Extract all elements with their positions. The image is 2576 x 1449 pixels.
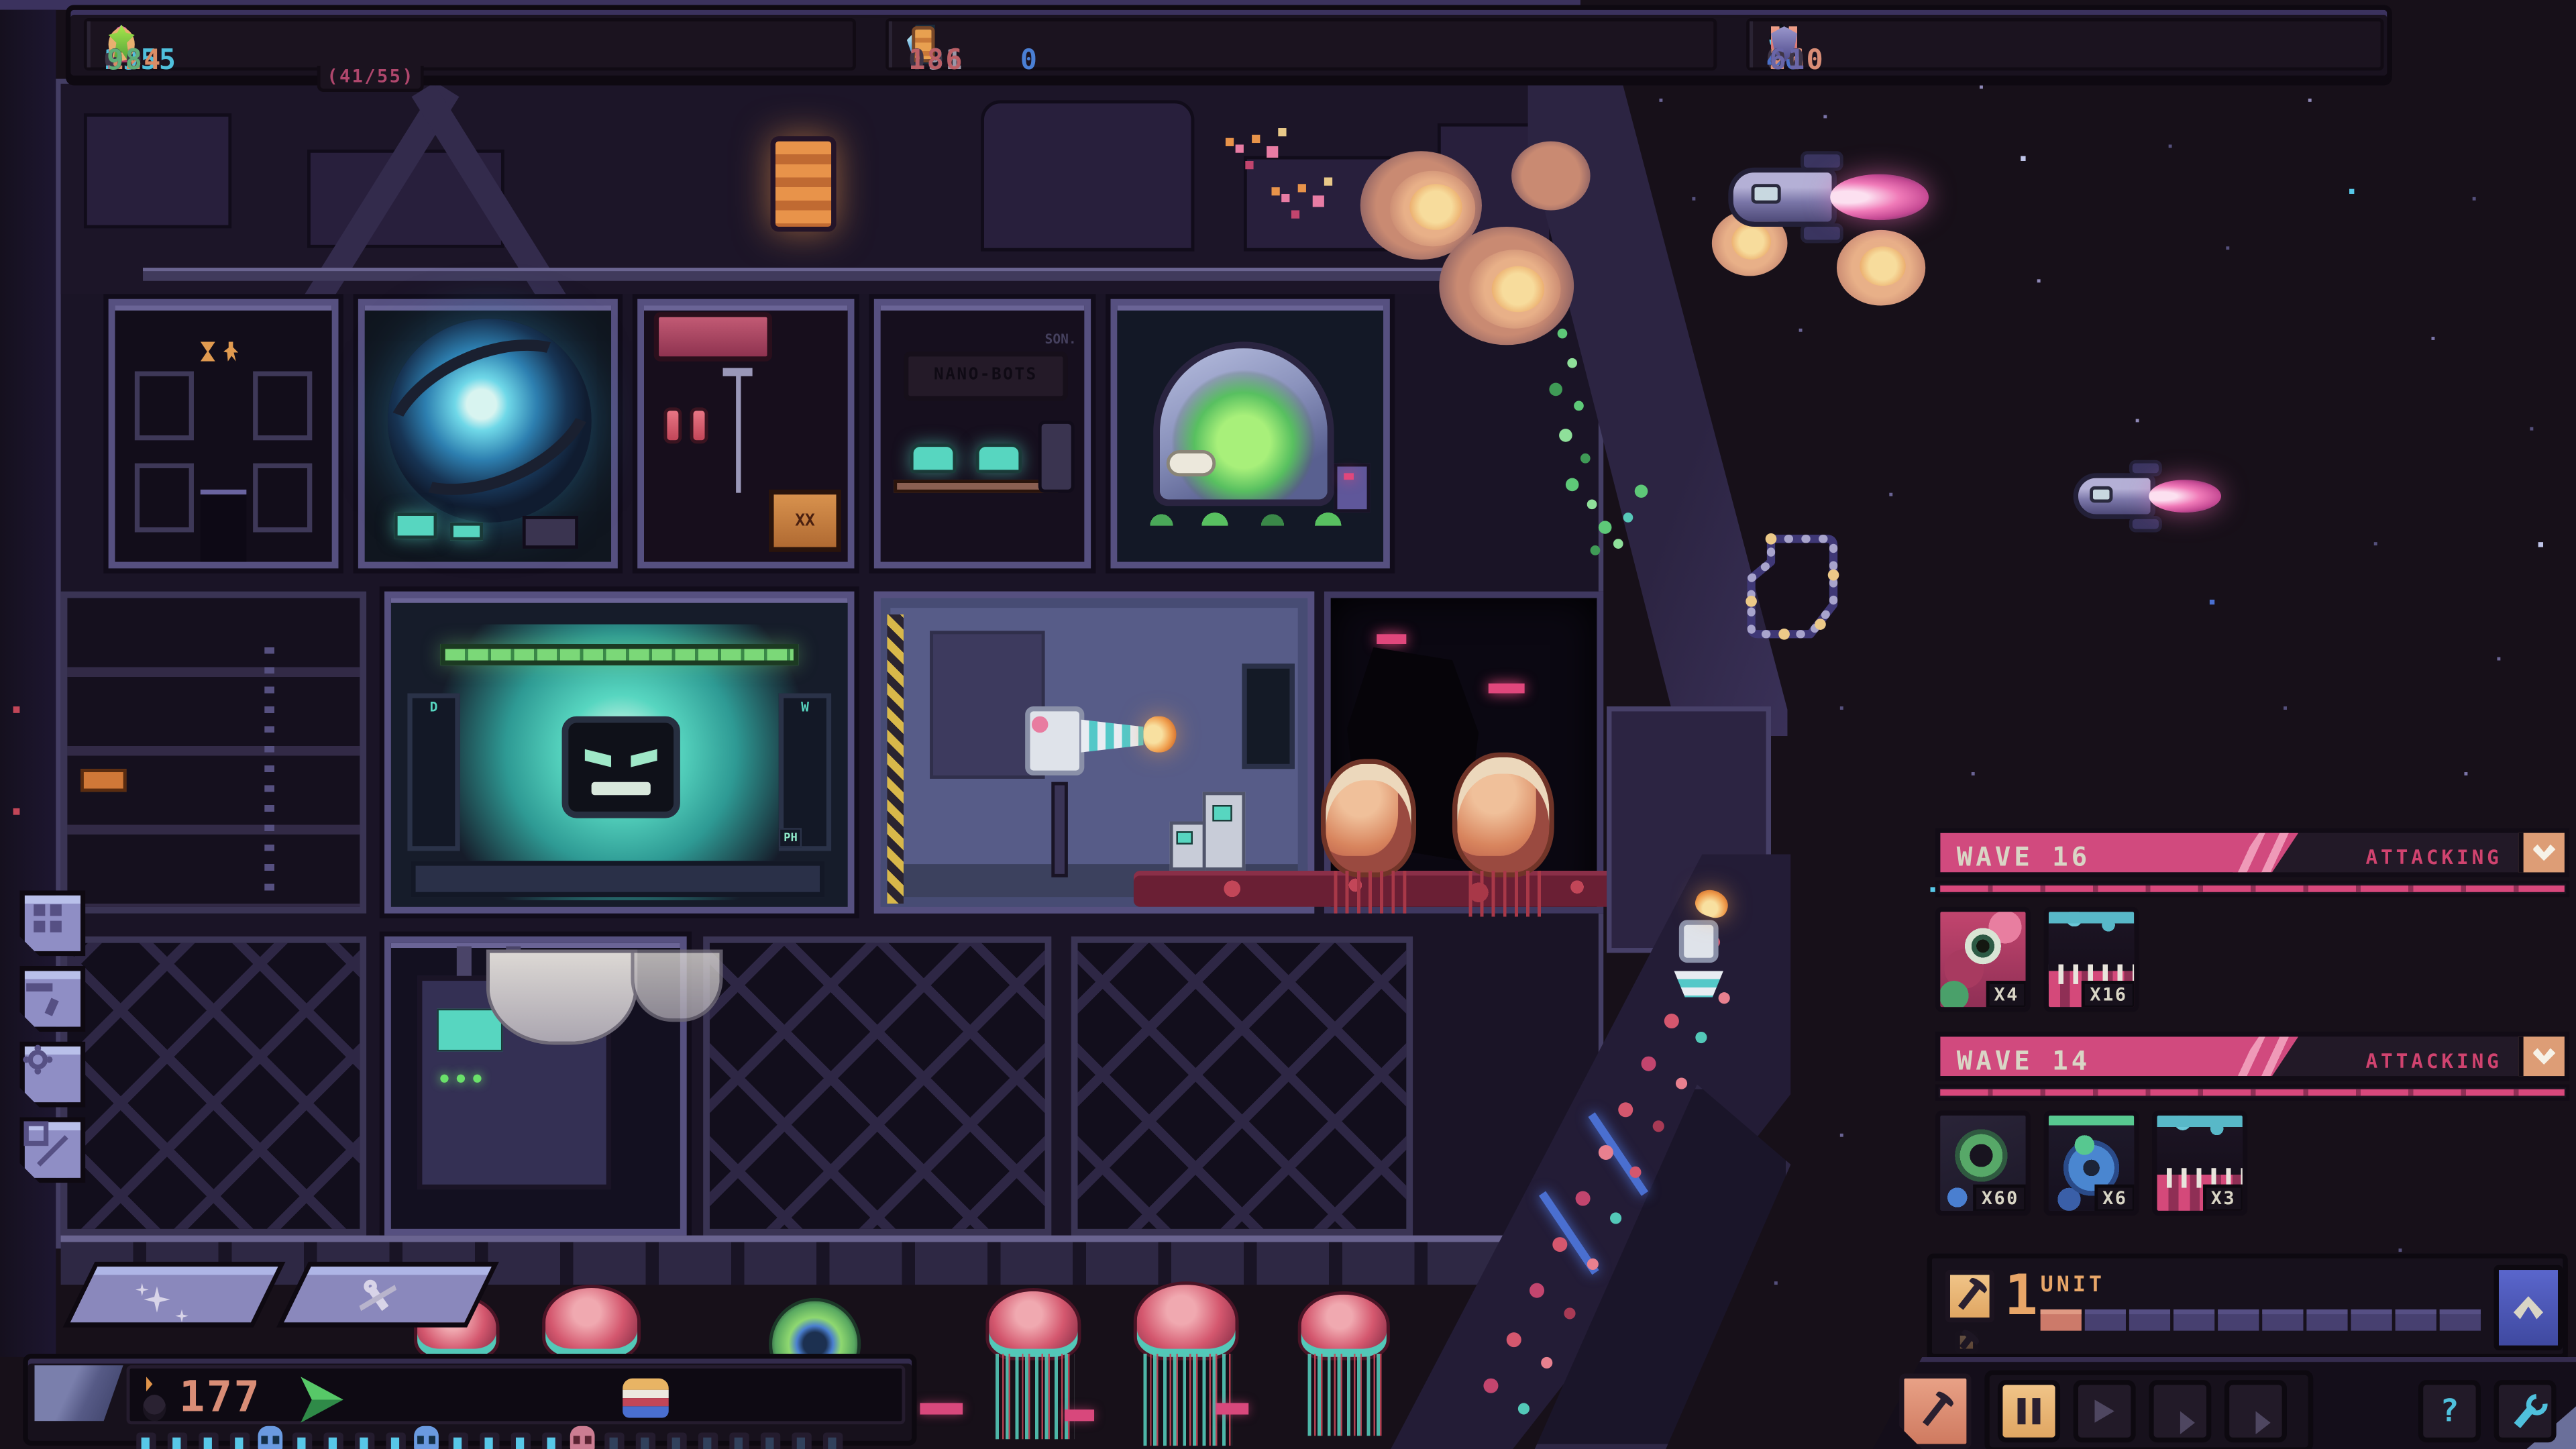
- readout-screen: 177: [127, 1365, 906, 1424]
- hazard-door-frame: [887, 614, 903, 904]
- wave-banner: WAVE 16 ATTACKING: [1935, 828, 2569, 877]
- timeline-slot: [574, 1433, 593, 1449]
- wave-status-badge: ATTACKING: [2365, 1050, 2502, 1073]
- flak-burst: [1236, 145, 1244, 153]
- enemy-count-badge: X6: [2094, 1185, 2136, 1213]
- timeline-slot: [511, 1433, 531, 1449]
- hourglass-icon: [201, 341, 215, 361]
- mech-icon: [26, 983, 52, 991]
- roof-pod: [981, 100, 1194, 251]
- jellyfish-monster[interactable]: [542, 1285, 641, 1360]
- missile-flame: [2149, 480, 2221, 513]
- iv-stand-arm: [723, 368, 753, 376]
- unit-progress-bar: [2041, 1309, 2481, 1331]
- timeline-tick: [484, 1438, 492, 1449]
- chevron-down-icon: [2532, 1048, 2555, 1064]
- plants: [1140, 499, 1354, 525]
- sparkle-icon-small: [136, 1283, 149, 1297]
- workshop-screen: [437, 1009, 502, 1052]
- pink-dash-lights: [920, 1403, 963, 1414]
- ai-robot-head: [562, 716, 680, 818]
- double-chevron-icon: [146, 1377, 158, 1391]
- skull-marker-icon: [258, 1426, 282, 1449]
- red-canister: [690, 407, 708, 443]
- fast-forward-button[interactable]: [2149, 1380, 2211, 1442]
- timeline-slot: [761, 1433, 780, 1449]
- wave-status-badge: ATTACKING: [2365, 846, 2502, 869]
- wave-progress-track: [1935, 1084, 2569, 1100]
- bar-end-cap: [34, 1365, 123, 1421]
- mining-timeline-bar: 177: [23, 1354, 916, 1446]
- jellyfish-tendrils: [1143, 1354, 1232, 1446]
- status-led: [440, 1075, 448, 1083]
- queued-unit-ghost: [1955, 1331, 1978, 1354]
- timeline-slot: [449, 1433, 468, 1449]
- lower-walkway: [61, 1236, 1605, 1285]
- iv-stand: [736, 371, 741, 492]
- timeline-tick: [204, 1438, 212, 1449]
- ph-monitor: PH: [779, 828, 802, 847]
- wave-collapse-button[interactable]: [2518, 833, 2565, 873]
- pause-icon: [2017, 1398, 2040, 1424]
- lab-cabinet: XX: [769, 490, 841, 552]
- missile-fin: [1801, 151, 1843, 170]
- brain-tendrils: [1468, 871, 1544, 917]
- help-button[interactable]: ?: [2418, 1380, 2481, 1442]
- storage-tanks: [1038, 421, 1075, 493]
- room-reactor[interactable]: [358, 299, 618, 569]
- pink-dash-lights: [1065, 1409, 1094, 1421]
- timeline-slot: [136, 1433, 156, 1449]
- wrench-icon: [2514, 1404, 2536, 1428]
- timeline-slot: [355, 1433, 374, 1449]
- play-icon: [2094, 1400, 2114, 1423]
- unit-progress-segment: [2440, 1309, 2481, 1331]
- room-crew-quarters[interactable]: [109, 299, 339, 569]
- missile-body: [1728, 168, 1837, 227]
- unit-progress-segment: [2218, 1309, 2259, 1331]
- machine-pipe: [457, 947, 472, 976]
- top-resource-bar: 01955 002 0124 0098 (41/55) 0: [66, 5, 2392, 80]
- rations-icon: [623, 1379, 669, 1418]
- timeline-slot: [323, 1433, 343, 1449]
- drill-accent: [1032, 716, 1048, 733]
- timeline-tick: [672, 1438, 680, 1449]
- timeline-tick: [297, 1438, 305, 1449]
- explosion-core: [1860, 246, 1906, 286]
- pickaxe-icon: [1923, 1396, 1948, 1426]
- unit-progress-segment: [2306, 1309, 2347, 1331]
- timeline-slot: [604, 1433, 624, 1449]
- game-root: XX NANO-BOTS SON. D W: [0, 0, 2576, 1449]
- room-greenhouse[interactable]: [1111, 299, 1390, 569]
- unit-label: UNIT: [2041, 1273, 2105, 1298]
- gear-icon: [28, 1050, 48, 1069]
- lab-counter: [894, 480, 1058, 493]
- timeline-slot: [292, 1433, 312, 1449]
- unit-progress-segment: [2351, 1309, 2392, 1331]
- timeline-tick: [360, 1438, 368, 1449]
- missile-fin: [2129, 460, 2162, 476]
- timeline-slot: [480, 1433, 499, 1449]
- room-nanobots-lab[interactable]: NANO-BOTS SON.: [874, 299, 1091, 569]
- effects-button[interactable]: [63, 1262, 286, 1328]
- missile-fin: [2129, 516, 2162, 532]
- enemy-count-badge: X16: [2082, 981, 2136, 1009]
- timeline-slot: [261, 1433, 280, 1449]
- pickaxe-icon: [1960, 1334, 1974, 1350]
- reactor-crate: [523, 516, 578, 549]
- enemy-card[interactable]: X16: [2044, 907, 2139, 1012]
- bunk-frame: [253, 371, 312, 440]
- timeline-tick: [142, 1438, 150, 1449]
- wave-progress-fill: [1940, 885, 2565, 892]
- bunk-frame: [253, 464, 312, 533]
- unit-progress-segment: [2262, 1309, 2303, 1331]
- drill-stand: [1051, 782, 1067, 877]
- ai-mouth: [592, 782, 651, 796]
- jellyfish-tendrils: [996, 1354, 1075, 1439]
- enemy-count-badge: X60: [1974, 1185, 2028, 1213]
- missile-window: [2090, 486, 2112, 502]
- enemy-count-badge: X3: [2202, 1185, 2244, 1213]
- timeline-tick: [610, 1438, 618, 1449]
- missile-window: [1752, 184, 1781, 203]
- hull-drill-turret[interactable]: [1679, 920, 1719, 963]
- enemy-count-badge: X4: [1986, 981, 2027, 1009]
- brain-monster[interactable]: [1452, 753, 1554, 877]
- control-console: [1203, 792, 1246, 871]
- nano-vat: [910, 443, 957, 473]
- timeline-slot: [230, 1433, 250, 1449]
- greenhouse-dome: [1153, 341, 1334, 506]
- enemy-card[interactable]: X60: [1935, 1111, 2031, 1216]
- room-ai-core[interactable]: D W PH: [384, 592, 854, 914]
- enemy-card[interactable]: X3: [2152, 1111, 2247, 1216]
- ladder: [264, 647, 274, 894]
- timeline-tick: [453, 1438, 462, 1449]
- timeline-tick: [703, 1438, 711, 1449]
- pause-button[interactable]: [1998, 1380, 2060, 1442]
- reactor-monitor: [450, 523, 483, 541]
- wave-title: WAVE 16: [1957, 841, 2090, 873]
- crane-piece[interactable]: [80, 769, 127, 792]
- drill-turret[interactable]: [1025, 706, 1084, 775]
- pickaxe-icon: [1958, 1283, 1982, 1310]
- timeline-tick: [329, 1438, 337, 1449]
- repair-tools-button[interactable]: [276, 1262, 499, 1328]
- resource-group-base: 01955 002 0124 0098: [84, 18, 856, 70]
- hull-light: [13, 808, 20, 815]
- demolish-icon: [24, 1121, 49, 1146]
- jellyfish-monster[interactable]: [1298, 1291, 1390, 1360]
- flak-burst: [1281, 194, 1289, 202]
- lower-truss-bay: [703, 936, 1051, 1236]
- settings-wrench-button[interactable]: [2494, 1380, 2557, 1442]
- greenhouse-console: [1334, 464, 1371, 513]
- unit-production-panel: 1 UNIT: [1927, 1254, 2568, 1359]
- scaffold-bays: [61, 592, 367, 914]
- timeline-tick: [235, 1438, 243, 1449]
- missile-body: [2074, 473, 2155, 519]
- skull-marker-icon: [570, 1426, 595, 1449]
- console-light: [1344, 473, 1354, 480]
- enemy-card[interactable]: X4: [1935, 907, 2031, 1012]
- timeline-tick: [516, 1438, 524, 1449]
- pink-dash-lights: [1216, 1403, 1248, 1414]
- unit-progress-segment: [2396, 1309, 2436, 1331]
- sparkle-icon-small: [175, 1309, 189, 1323]
- ai-eye: [585, 749, 611, 767]
- crew-capacity-label: (41/55): [317, 66, 425, 92]
- resource-ammo: 0186: [889, 21, 925, 68]
- nanobots-sign: NANO-BOTS: [904, 352, 1068, 400]
- unit-count: 1: [2004, 1263, 2040, 1329]
- timeline-slot: [823, 1433, 843, 1449]
- bunk-frame: [135, 464, 194, 533]
- wave-progress-track: [1935, 881, 2569, 897]
- timeline-slot: [417, 1433, 437, 1449]
- wave-timeline: [136, 1431, 908, 1449]
- missile-fin: [1801, 223, 1843, 243]
- tool-head: [364, 1280, 377, 1293]
- lower-truss-bay: [1071, 936, 1413, 1236]
- ai-consoles: [411, 861, 824, 897]
- fastest-forward-button[interactable]: [2224, 1380, 2287, 1442]
- jellyfish-tendrils: [1307, 1354, 1383, 1436]
- resource-shields: 0061: [1750, 21, 1786, 68]
- miner-unit-button[interactable]: [1945, 1270, 1994, 1322]
- ai-eye: [631, 749, 657, 767]
- status-led: [457, 1075, 465, 1083]
- wave-progress-fill: [1940, 1089, 2565, 1096]
- plasma-coil-machine[interactable]: [771, 136, 837, 231]
- timeline-tick: [391, 1438, 399, 1449]
- explosion-core: [1492, 266, 1544, 313]
- status-led: [473, 1075, 481, 1083]
- breach-light: [1489, 684, 1525, 694]
- room-med-lab[interactable]: XX: [637, 299, 854, 569]
- timeline-slot: [636, 1433, 655, 1449]
- jellyfish-monster[interactable]: [1134, 1281, 1239, 1360]
- ai-charge-bar: [440, 644, 798, 665]
- unit-progress-segment: [2085, 1309, 2126, 1331]
- timeline-slot: [729, 1433, 749, 1449]
- wave-title: WAVE 14: [1957, 1045, 2090, 1077]
- breach-light: [1377, 634, 1406, 644]
- larva-tube: [1167, 450, 1216, 476]
- console-screen: [1176, 831, 1192, 845]
- gauge-icon: [143, 1395, 166, 1421]
- chevron-up-icon: [2514, 1296, 2543, 1319]
- wave-banner: WAVE 14 ATTACKING: [1935, 1032, 2569, 1081]
- resource-group-materials: 0 0191 0018 0186: [885, 18, 1717, 70]
- drill-bit: [1081, 720, 1143, 753]
- timeline-tick: [641, 1438, 649, 1449]
- timeline-slot: [542, 1433, 561, 1449]
- wave-panel-14: WAVE 14 ATTACKING X60 X6 X3: [1935, 1032, 2569, 1229]
- unit-progress-segment: [2129, 1309, 2170, 1331]
- wave-collapse-button[interactable]: [2518, 1036, 2565, 1076]
- walking-person-icon: [223, 341, 238, 361]
- corridor-window: [1242, 663, 1294, 769]
- timeline-tick: [172, 1438, 180, 1449]
- timeline-slot: [667, 1433, 686, 1449]
- chevron-down-icon: [2532, 845, 2555, 861]
- resource-group-special: 0040 0000 0260 0061: [1746, 18, 2383, 70]
- red-canister: [663, 407, 682, 443]
- timeline-tick: [547, 1438, 555, 1449]
- timeline-tick: [735, 1438, 743, 1449]
- explosion-cloud: [1511, 142, 1591, 211]
- unit-progress-segment: [2173, 1309, 2214, 1331]
- lower-bay: [61, 936, 367, 1236]
- console-screen: [1212, 805, 1232, 821]
- green-flag-icon: [301, 1377, 343, 1423]
- expand-panel-button[interactable]: [2494, 1265, 2563, 1350]
- timeline-tick: [828, 1438, 836, 1449]
- timeline-slot: [199, 1433, 218, 1449]
- nano-vat: [976, 443, 1022, 473]
- hull-light: [13, 706, 20, 713]
- wall-text: SON.: [1045, 332, 1077, 347]
- room-corridor[interactable]: [874, 592, 1314, 914]
- sparkle-icon: [144, 1287, 170, 1313]
- roof-conveyor: [143, 268, 1589, 281]
- explosion-core: [1731, 223, 1771, 260]
- timeline-slot: [386, 1433, 406, 1449]
- explosion-core: [1409, 184, 1462, 230]
- green-enemy-swarm[interactable]: [1558, 329, 1568, 339]
- timeline-tick: [765, 1438, 773, 1449]
- timeline-slot: [792, 1433, 811, 1449]
- play-button[interactable]: [2074, 1380, 2136, 1442]
- bunk-frame: [135, 371, 194, 440]
- ai-side-panel: D: [407, 693, 460, 851]
- mech-icon-leg: [45, 998, 59, 1016]
- timeline-slot: [168, 1433, 187, 1449]
- missile-flame: [1830, 174, 1929, 221]
- build-zone-marker[interactable]: [1735, 532, 1860, 663]
- wave-panel-16: WAVE 16 ATTACKING X4 X16: [1935, 828, 2569, 1025]
- enemy-card[interactable]: X6: [2044, 1111, 2139, 1216]
- roof-machine: [84, 113, 231, 228]
- room-door: [201, 490, 247, 562]
- brain-monster[interactable]: [1321, 759, 1416, 877]
- timeline-tick: [797, 1438, 805, 1449]
- unit-progress-segment: [2041, 1309, 2082, 1331]
- brain-tendrils: [1334, 871, 1407, 914]
- timeline-slot: [698, 1433, 718, 1449]
- reactor-monitor: [394, 513, 437, 539]
- control-console: [1170, 821, 1206, 870]
- drill-flame: [1143, 716, 1176, 753]
- lab-machine: [654, 312, 772, 361]
- skull-marker-icon: [414, 1426, 439, 1449]
- build-grid-icon: [34, 904, 45, 916]
- mining-value: 177: [179, 1373, 261, 1422]
- resource-biomass: 0098: [87, 21, 123, 68]
- jellyfish-monster[interactable]: [985, 1288, 1081, 1360]
